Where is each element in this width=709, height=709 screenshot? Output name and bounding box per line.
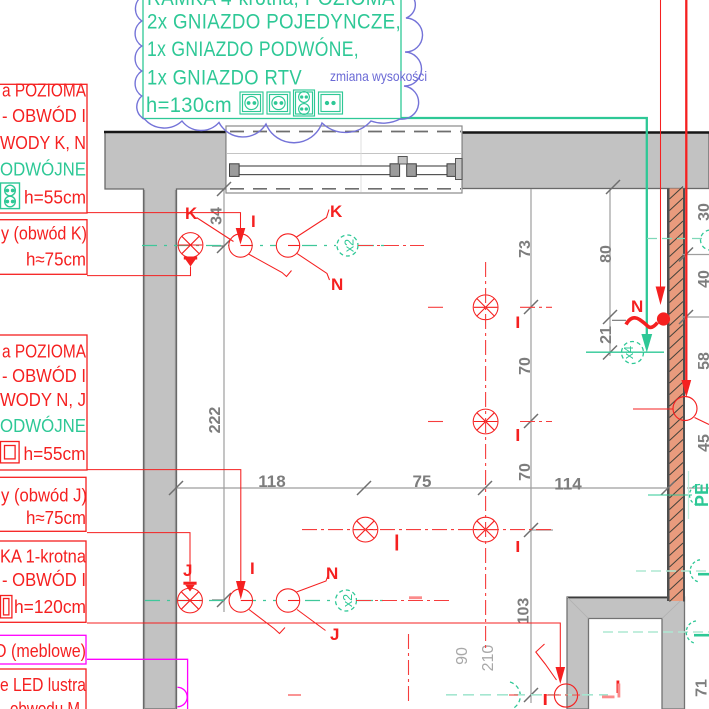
svg-text:210: 210 bbox=[480, 645, 497, 672]
svg-text:a POZIOMA: a POZIOMA bbox=[2, 80, 87, 101]
svg-text:KA 1-krotna: KA 1-krotna bbox=[0, 546, 87, 567]
svg-text:ODWÓJNE: ODWÓJNE bbox=[0, 415, 86, 436]
svg-text:ODWÓJNE: ODWÓJNE bbox=[0, 159, 86, 180]
svg-text:J: J bbox=[183, 561, 192, 580]
svg-text:I: I bbox=[250, 559, 255, 578]
svg-text:70: 70 bbox=[517, 357, 534, 375]
svg-text:PE: PE bbox=[692, 483, 709, 507]
svg-text:x2: x2 bbox=[343, 239, 357, 252]
svg-text:h=130cm: h=130cm bbox=[146, 94, 232, 117]
svg-text:y (obwód K): y (obwód K) bbox=[1, 223, 87, 244]
svg-text:45: 45 bbox=[696, 434, 709, 452]
svg-text:90: 90 bbox=[454, 647, 471, 665]
svg-text:N: N bbox=[326, 564, 338, 583]
svg-text:h=55cm: h=55cm bbox=[24, 187, 86, 208]
svg-text:h≈75cm: h≈75cm bbox=[26, 249, 86, 270]
svg-text:I: I bbox=[251, 212, 256, 231]
svg-text:N: N bbox=[331, 275, 343, 294]
svg-text:34: 34 bbox=[209, 207, 226, 225]
svg-text:y (obwód J): y (obwód J) bbox=[1, 485, 87, 506]
svg-text:- OBWÓD I: - OBWÓD I bbox=[2, 105, 86, 126]
svg-text:J: J bbox=[330, 625, 339, 644]
svg-text:h=120cm: h=120cm bbox=[14, 596, 86, 617]
svg-text:N: N bbox=[631, 297, 643, 316]
svg-text:118: 118 bbox=[258, 472, 285, 491]
svg-text:- OBWÓD I: - OBWÓD I bbox=[2, 569, 86, 590]
svg-text:WODY K, N: WODY K, N bbox=[0, 132, 86, 153]
svg-text:zmiana wysokości: zmiana wysokości bbox=[330, 68, 427, 84]
svg-text:2x GNIAZDO POJEDYNCZE,: 2x GNIAZDO POJEDYNCZE, bbox=[147, 11, 401, 34]
svg-text:1x GNIAZDO RTV: 1x GNIAZDO RTV bbox=[147, 67, 302, 90]
svg-text:222: 222 bbox=[207, 407, 224, 434]
svg-text:h≈75cm: h≈75cm bbox=[26, 507, 86, 528]
svg-text:- OBWÓD I: - OBWÓD I bbox=[2, 365, 86, 386]
svg-text:114: 114 bbox=[554, 475, 582, 494]
svg-text:h=55cm: h=55cm bbox=[24, 443, 86, 464]
svg-text:40: 40 bbox=[696, 270, 709, 288]
svg-text:O (meblowe): O (meblowe) bbox=[0, 640, 86, 661]
svg-text:58: 58 bbox=[696, 352, 709, 370]
svg-text:71: 71 bbox=[694, 679, 709, 697]
svg-text:1x GNIAZDO PODWÓNE,: 1x GNIAZDO PODWÓNE, bbox=[147, 38, 359, 61]
svg-text:a POZIOMA: a POZIOMA bbox=[2, 341, 87, 362]
svg-text:x2: x2 bbox=[341, 594, 355, 607]
svg-text:80: 80 bbox=[598, 245, 615, 263]
svg-text:K: K bbox=[330, 202, 343, 221]
svg-text:K: K bbox=[185, 204, 198, 223]
svg-text:70: 70 bbox=[517, 463, 534, 481]
svg-text:x4: x4 bbox=[622, 346, 636, 359]
svg-text:obwodu M: obwodu M bbox=[10, 698, 80, 709]
svg-text:73: 73 bbox=[517, 240, 534, 258]
svg-text:75: 75 bbox=[413, 472, 432, 491]
svg-text:21: 21 bbox=[598, 326, 615, 344]
svg-text:WODY N, J: WODY N, J bbox=[0, 389, 86, 410]
svg-text:RAMKA 4-krotna, POZIOMA: RAMKA 4-krotna, POZIOMA bbox=[147, 0, 395, 10]
svg-text:30: 30 bbox=[696, 203, 709, 221]
svg-text:e LED lustra: e LED lustra bbox=[0, 674, 87, 695]
svg-text:103: 103 bbox=[516, 598, 533, 625]
